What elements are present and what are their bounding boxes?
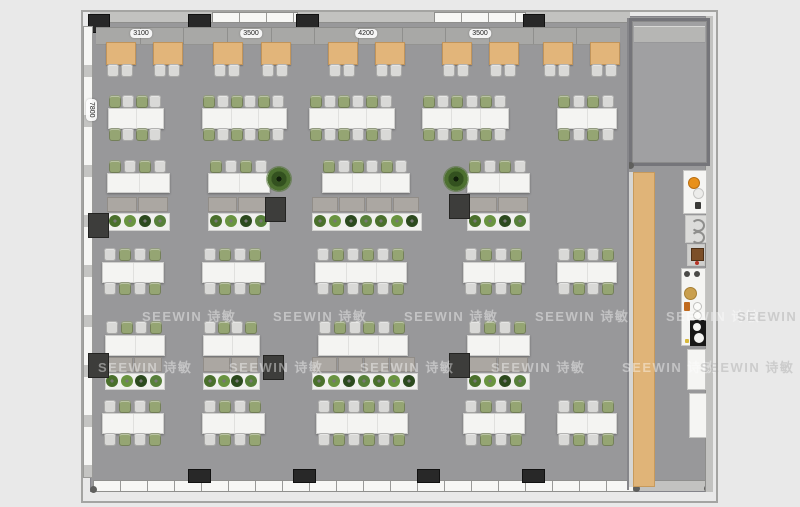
dining-chair (104, 282, 116, 295)
dining-chair (465, 400, 477, 413)
dining-chair (392, 282, 404, 295)
dining-chair (558, 433, 570, 446)
lounge-chair (469, 321, 481, 334)
table-seam (378, 336, 379, 355)
storage-cube (449, 194, 470, 219)
dining-chair (558, 128, 570, 141)
dining-chair (109, 128, 121, 141)
booth-table (213, 42, 243, 65)
dining-chair (393, 400, 405, 413)
sofa-bench (134, 357, 162, 372)
booth-chair (329, 64, 341, 77)
dining-chair (587, 95, 599, 108)
table-seam (451, 109, 452, 128)
booth-chair (107, 64, 119, 77)
storage-cube (88, 213, 109, 238)
booth-chair (168, 64, 180, 77)
plant (373, 375, 385, 387)
table-seam (587, 414, 588, 433)
table-seam (231, 109, 232, 128)
dining-chair (272, 128, 284, 141)
lounge-chair (381, 160, 393, 173)
dining-chair (104, 400, 116, 413)
dimension-label-top-3: 4200 (355, 29, 377, 38)
plant (240, 215, 252, 227)
floorplan-scene: 3100 3500 4200 3500 7800 SEEWIN 诗敏SEEWIN… (0, 0, 800, 507)
dining-chair (249, 400, 261, 413)
booth-chair (390, 64, 402, 77)
table-seam (587, 263, 588, 282)
plant (210, 215, 222, 227)
dining-chair (573, 128, 585, 141)
table-seam (133, 414, 134, 433)
plant (150, 375, 162, 387)
lounge-chair (349, 321, 361, 334)
dining-chair (465, 282, 477, 295)
dining-chair (480, 248, 492, 261)
dining-chair (495, 400, 507, 413)
plant (343, 375, 355, 387)
lounge-chair (204, 321, 216, 334)
dining-chair (203, 95, 215, 108)
lounge-chair (121, 321, 133, 334)
storage-cube (263, 355, 284, 380)
plant (124, 215, 136, 227)
dining-chair (244, 128, 256, 141)
dining-table (309, 108, 395, 129)
dining-chair (332, 248, 344, 261)
storage-cube (265, 197, 286, 222)
dining-table (557, 413, 617, 434)
dining-chair (231, 128, 243, 141)
booth-chair (605, 64, 617, 77)
dining-chair (602, 95, 614, 108)
sofa-bench (203, 357, 230, 372)
booth-table (106, 42, 136, 65)
booth-table (489, 42, 519, 65)
dining-chair (219, 248, 231, 261)
dining-chair (602, 248, 614, 261)
storage-cube (88, 353, 109, 378)
dining-table (202, 413, 265, 434)
dining-table (463, 262, 525, 283)
dining-chair (348, 400, 360, 413)
table-seam (135, 336, 136, 355)
dining-chair (437, 95, 449, 108)
booth-chair (228, 64, 240, 77)
dining-chair (587, 248, 599, 261)
plant (218, 375, 230, 387)
dining-chair (423, 128, 435, 141)
dining-chair (317, 248, 329, 261)
table-seam (480, 109, 481, 128)
dining-chair (149, 248, 161, 261)
storage-cube (449, 353, 470, 378)
dining-chair (602, 282, 614, 295)
plant (154, 215, 166, 227)
dining-chair (558, 248, 570, 261)
dining-chair (244, 95, 256, 108)
dining-chair (109, 95, 121, 108)
sofa-bench (393, 197, 419, 212)
lounge-table (208, 173, 270, 193)
booth-table (153, 42, 183, 65)
dining-table (102, 413, 164, 434)
dining-chair (219, 282, 231, 295)
dining-chair (119, 433, 131, 446)
dining-chair (149, 95, 161, 108)
dining-chair (234, 248, 246, 261)
table-seam (139, 174, 140, 192)
dining-chair (219, 400, 231, 413)
dining-chair (231, 95, 243, 108)
lounge-chair (135, 321, 147, 334)
dining-chair (338, 128, 350, 141)
dining-chair (249, 282, 261, 295)
dining-chair (573, 400, 585, 413)
dining-chair (510, 282, 522, 295)
lounge-chair (499, 321, 511, 334)
dining-table (108, 108, 164, 129)
lounge-chair (210, 160, 222, 173)
table-seam (234, 414, 235, 433)
table-seam (239, 174, 240, 192)
dining-chair (393, 433, 405, 446)
dining-chair (352, 95, 364, 108)
dining-chair (134, 433, 146, 446)
lounge-chair (124, 160, 136, 173)
dining-chair (494, 95, 506, 108)
dining-chair (480, 95, 492, 108)
plant (121, 375, 133, 387)
booth-chair (121, 64, 133, 77)
plant (329, 215, 341, 227)
dimension-label-left: 7800 (86, 99, 97, 121)
table-seam (352, 174, 353, 192)
lounge-table (107, 173, 170, 193)
booth-table (328, 42, 358, 65)
plant (225, 215, 237, 227)
lounge-chair (395, 160, 407, 173)
plant (469, 215, 481, 227)
dining-chair (234, 433, 246, 446)
table-seam (380, 174, 381, 192)
dining-chair (234, 400, 246, 413)
dining-chair (219, 433, 231, 446)
sofa-bench (498, 357, 528, 372)
table-seam (366, 109, 367, 128)
dining-table (202, 108, 287, 129)
dining-chair (437, 128, 449, 141)
table-seam (376, 263, 377, 282)
lounge-chair (225, 160, 237, 173)
booth-chair (490, 64, 502, 77)
dining-table (463, 413, 525, 434)
dining-chair (333, 433, 345, 446)
booth-chair (591, 64, 603, 77)
dining-chair (149, 282, 161, 295)
plant (313, 375, 325, 387)
lounge-chair (499, 160, 511, 173)
plant (514, 375, 526, 387)
dining-chair (149, 128, 161, 141)
lounge-chair (139, 160, 151, 173)
dining-chair (377, 248, 389, 261)
sofa-bench (107, 197, 137, 212)
dimension-label-top-2: 3500 (240, 29, 262, 38)
dining-chair (587, 282, 599, 295)
plant (358, 375, 370, 387)
bench-seam (576, 28, 577, 44)
lounge-chair (469, 160, 481, 173)
dining-chair (119, 400, 131, 413)
plant (135, 375, 147, 387)
lounge-chair (109, 160, 121, 173)
dining-chair (217, 95, 229, 108)
lounge-chair (255, 160, 267, 173)
table-seam (494, 414, 495, 433)
lounge-chair (378, 321, 390, 334)
bench-seam (314, 28, 315, 44)
dining-chair (480, 433, 492, 446)
dining-chair (510, 433, 522, 446)
dining-chair (451, 95, 463, 108)
sofa-bench (498, 197, 528, 212)
table-seam (133, 263, 134, 282)
dining-chair (249, 248, 261, 261)
dining-chair (122, 128, 134, 141)
dining-chair (104, 248, 116, 261)
table-seam (499, 336, 500, 355)
dining-chair (510, 248, 522, 261)
booth-chair (343, 64, 355, 77)
dining-chair (119, 282, 131, 295)
dining-chair (495, 433, 507, 446)
table-seam (346, 263, 347, 282)
dining-chair (380, 128, 392, 141)
table-seam (232, 336, 233, 355)
table-seam (587, 109, 588, 128)
dining-chair (363, 400, 375, 413)
dining-chair (362, 282, 374, 295)
booth-table (261, 42, 291, 65)
dining-table (315, 262, 407, 283)
dining-chair (587, 128, 599, 141)
dining-chair (204, 282, 216, 295)
dining-chair (480, 282, 492, 295)
dining-chair (348, 433, 360, 446)
sofa-bench (390, 357, 415, 372)
furniture-layer (0, 0, 800, 507)
booth-chair (262, 64, 274, 77)
dining-chair (203, 128, 215, 141)
dining-chair (510, 400, 522, 413)
booth-chair (457, 64, 469, 77)
plant (245, 375, 257, 387)
plant (375, 215, 387, 227)
sofa-bench (366, 197, 392, 212)
booth-table (375, 42, 405, 65)
sofa-bench (238, 197, 267, 212)
dining-chair (204, 433, 216, 446)
table-seam (348, 336, 349, 355)
dining-chair (378, 433, 390, 446)
dining-chair (495, 282, 507, 295)
lounge-table (203, 335, 260, 356)
dining-chair (318, 433, 330, 446)
lounge-chair (150, 321, 162, 334)
dining-chair (362, 248, 374, 261)
dining-chair (494, 128, 506, 141)
dining-chair (558, 400, 570, 413)
lounge-chair (154, 160, 166, 173)
dining-chair (318, 400, 330, 413)
plant (484, 215, 496, 227)
bench-seam (533, 28, 534, 44)
dining-chair (366, 128, 378, 141)
table-seam (377, 414, 378, 433)
sofa-bench (208, 197, 237, 212)
dining-chair (466, 128, 478, 141)
dining-chair (332, 282, 344, 295)
lounge-chair (366, 160, 378, 173)
dining-chair (134, 400, 146, 413)
dining-chair (204, 248, 216, 261)
dining-chair (558, 95, 570, 108)
sofa-bench (467, 197, 497, 212)
booth-table (442, 42, 472, 65)
plant (345, 215, 357, 227)
dining-chair (587, 433, 599, 446)
dining-chair (317, 282, 329, 295)
dining-chair (465, 248, 477, 261)
plant (499, 215, 511, 227)
dining-chair (466, 95, 478, 108)
dining-chair (272, 95, 284, 108)
dining-chair (134, 282, 146, 295)
table-seam (347, 414, 348, 433)
sofa-bench (312, 357, 337, 372)
dining-chair (104, 433, 116, 446)
lounge-table (467, 335, 530, 356)
dining-table (316, 413, 408, 434)
lounge-chair (514, 321, 526, 334)
booth-chair (214, 64, 226, 77)
dining-chair (602, 400, 614, 413)
sofa-bench (105, 357, 133, 372)
dining-chair (136, 128, 148, 141)
lounge-chair (484, 321, 496, 334)
dimension-label-top-1: 3100 (130, 29, 152, 38)
sofa-bench (231, 357, 258, 372)
dining-chair (495, 248, 507, 261)
dining-chair (258, 128, 270, 141)
plant (403, 375, 415, 387)
dining-chair (602, 433, 614, 446)
potted-tree (443, 166, 469, 192)
dining-chair (573, 95, 585, 108)
sofa-bench (138, 197, 168, 212)
lounge-chair (323, 160, 335, 173)
sofa-bench (339, 197, 365, 212)
lounge-chair (245, 321, 257, 334)
plant (406, 215, 418, 227)
dining-table (102, 262, 164, 283)
booth-chair (504, 64, 516, 77)
bench-seam (183, 28, 184, 44)
booth-chair (154, 64, 166, 77)
dining-chair (234, 282, 246, 295)
table-seam (338, 109, 339, 128)
dining-chair (602, 128, 614, 141)
dining-chair (333, 400, 345, 413)
dining-table (557, 108, 617, 129)
lounge-chair (352, 160, 364, 173)
sofa-bench (312, 197, 338, 212)
dining-table (422, 108, 509, 129)
lounge-table (467, 173, 530, 193)
plant (391, 215, 403, 227)
lounge-chair (393, 321, 405, 334)
lounge-chair (363, 321, 375, 334)
lounge-chair (240, 160, 252, 173)
dining-chair (149, 433, 161, 446)
dining-chair (324, 95, 336, 108)
plant (469, 375, 481, 387)
booth-table (543, 42, 573, 65)
sofa-bench (364, 357, 389, 372)
lounge-chair (484, 160, 496, 173)
sofa-bench (338, 357, 363, 372)
table-seam (494, 263, 495, 282)
dining-chair (347, 282, 359, 295)
dining-chair (363, 433, 375, 446)
lounge-table (105, 335, 165, 356)
dining-chair (573, 433, 585, 446)
table-seam (258, 109, 259, 128)
lounge-table (322, 173, 410, 193)
lounge-chair (106, 321, 118, 334)
plant (231, 375, 243, 387)
dining-table (557, 262, 617, 283)
dining-chair (310, 128, 322, 141)
lounge-chair (338, 160, 350, 173)
booth-chair (544, 64, 556, 77)
lounge-chair (514, 160, 526, 173)
dining-chair (378, 400, 390, 413)
dining-chair (249, 433, 261, 446)
dining-chair (122, 95, 134, 108)
dining-chair (366, 95, 378, 108)
dining-chair (324, 128, 336, 141)
plant (484, 375, 496, 387)
dining-chair (380, 95, 392, 108)
lounge-chair (218, 321, 230, 334)
plant (328, 375, 340, 387)
plant (514, 215, 526, 227)
dining-chair (204, 400, 216, 413)
dining-chair (480, 128, 492, 141)
dining-chair (377, 282, 389, 295)
booth-chair (276, 64, 288, 77)
dining-chair (119, 248, 131, 261)
dining-chair (347, 248, 359, 261)
dimension-label-top-4: 3500 (469, 29, 491, 38)
dining-chair (480, 400, 492, 413)
plant (204, 375, 216, 387)
dining-chair (149, 400, 161, 413)
plant (360, 215, 372, 227)
